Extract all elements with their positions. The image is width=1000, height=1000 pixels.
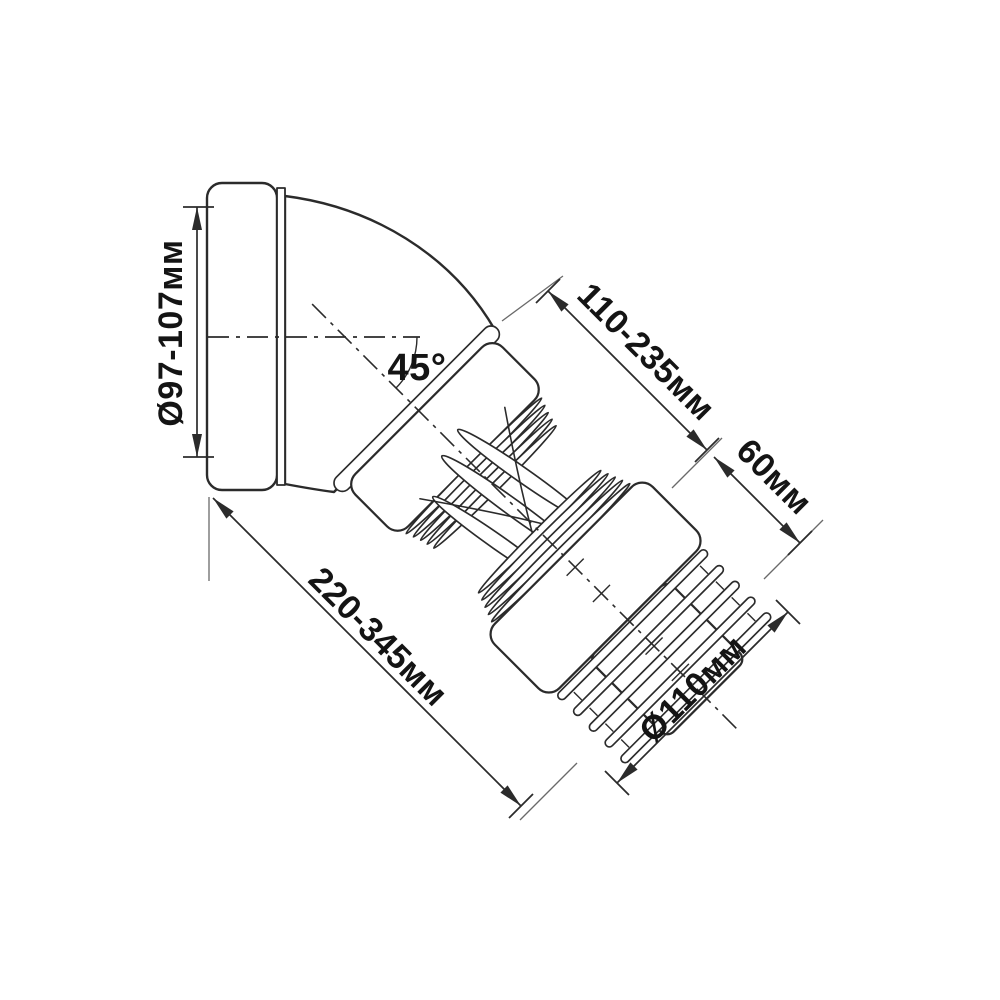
corrugated-length-label: 110-235мм	[570, 276, 723, 429]
outlet-length-label: 60мм	[729, 432, 820, 523]
technical-drawing-page: Ø97-107мм 45° 110-235мм 60мм 220-345мм	[0, 0, 1000, 1000]
inlet-diameter-label: Ø97-107мм	[152, 239, 190, 426]
overall-length-label: 220-345мм	[301, 560, 455, 714]
wc-connector-diagram: Ø97-107мм 45° 110-235мм 60мм 220-345мм	[0, 0, 1000, 1000]
bend-angle-label: 45°	[388, 347, 447, 389]
dim-inlet-diameter: Ø97-107мм	[152, 207, 214, 457]
dim-outlet-length: 60мм	[714, 432, 823, 579]
hose-assembly	[232, 224, 820, 812]
